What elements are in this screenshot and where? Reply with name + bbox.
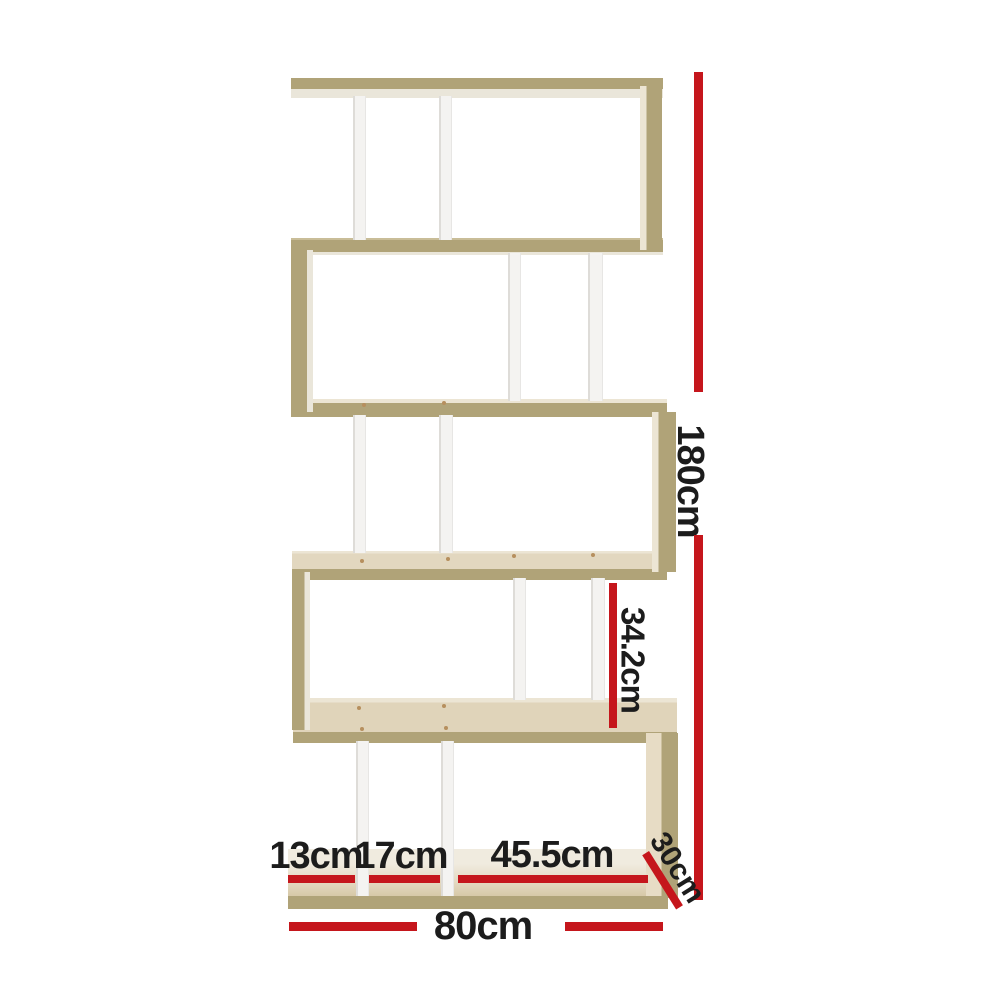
screw-hole xyxy=(446,557,450,561)
screw-hole xyxy=(362,403,366,407)
right-section-width-label: 45.5cm xyxy=(491,836,614,874)
divider-tier4-b xyxy=(591,578,605,700)
side-panel-tier1-right xyxy=(640,86,662,250)
screw-hole xyxy=(442,704,446,708)
width-dimension-label: 80cm xyxy=(434,906,532,946)
section-height-dimension-label: 34.2cm xyxy=(617,607,650,713)
divider-tier1-a xyxy=(353,96,366,240)
screw-hole xyxy=(442,401,446,405)
height-dimension-label: 180cm xyxy=(671,424,709,537)
divider-tier2-b xyxy=(588,253,603,401)
divider-tier2-a xyxy=(508,253,521,401)
middle-section-width-label: 17cm xyxy=(354,837,447,875)
shelf-board-4 xyxy=(292,551,667,580)
height-dimension-line-lower xyxy=(694,535,703,900)
divider-tier3-a xyxy=(353,415,366,553)
divider-tier4-a xyxy=(513,578,526,700)
divider-tier3-b xyxy=(439,415,453,553)
height-dimension-line-upper xyxy=(694,72,703,392)
shelf-board-2 xyxy=(291,238,663,255)
screw-hole xyxy=(512,554,516,558)
width-dimension-line-right xyxy=(565,922,663,931)
divider-tier1-b xyxy=(439,96,452,240)
screw-hole xyxy=(357,706,361,710)
screw-hole xyxy=(360,727,364,731)
left-section-width-line xyxy=(288,875,355,883)
middle-section-width-line xyxy=(369,875,440,883)
left-section-width-label: 13cm xyxy=(269,837,362,875)
width-dimension-line-left xyxy=(289,922,417,931)
product-dimension-image: 180cm 34.2cm 13cm 17cm 45.5cm 30cm 80cm xyxy=(0,0,1000,1000)
screw-hole xyxy=(360,559,364,563)
side-panel-tier2-left xyxy=(291,250,313,412)
screw-hole xyxy=(444,726,448,730)
screw-hole xyxy=(591,553,595,557)
right-section-width-line xyxy=(458,875,648,883)
side-panel-tier4-left xyxy=(292,572,310,730)
shelf-board-3 xyxy=(291,399,667,417)
shelf-board-top xyxy=(291,78,663,98)
